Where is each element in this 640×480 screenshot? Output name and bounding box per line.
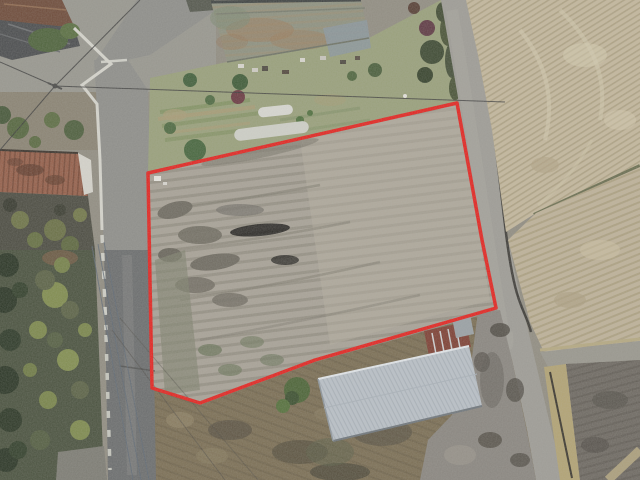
photo-grain bbox=[0, 0, 640, 480]
aerial-photo bbox=[0, 0, 640, 480]
aerial-photo-canvas bbox=[0, 0, 640, 480]
